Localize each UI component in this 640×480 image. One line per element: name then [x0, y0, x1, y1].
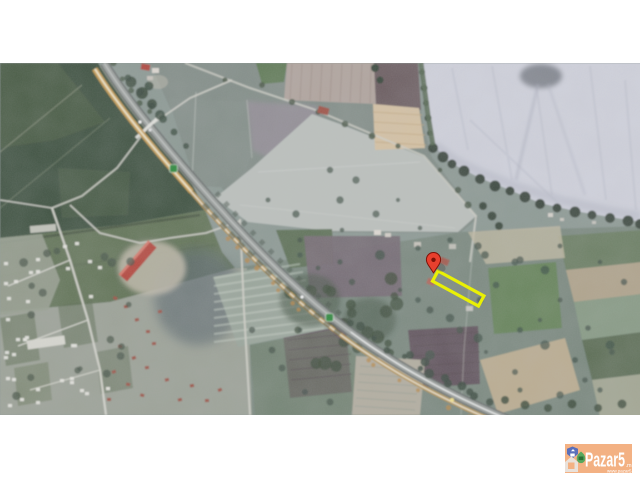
svg-text:www.pazar5.mk: www.pazar5.mk — [607, 469, 640, 474]
